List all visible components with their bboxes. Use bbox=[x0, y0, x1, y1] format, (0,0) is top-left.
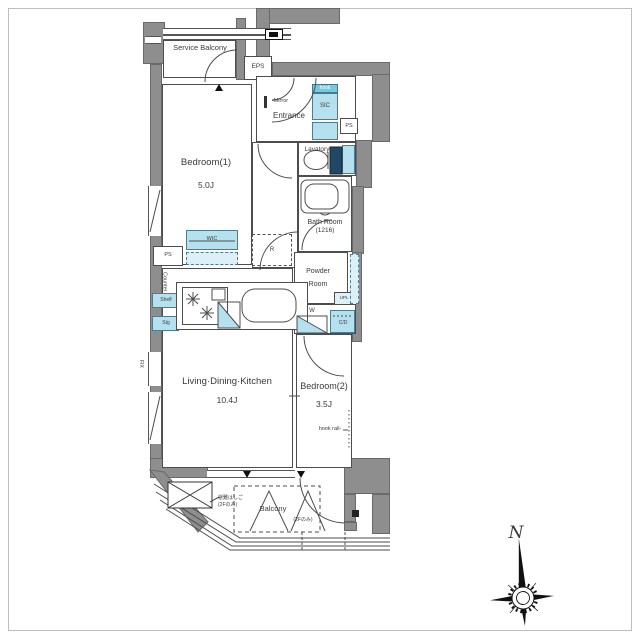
label-ldk: Living·Dining·Kitchen bbox=[182, 377, 272, 387]
label-wic: WIC bbox=[207, 237, 218, 243]
label-ps-entrance: PS bbox=[345, 124, 352, 130]
mirror-icon bbox=[264, 96, 267, 108]
label-powder-2: Room bbox=[309, 281, 328, 288]
door-arc-service-balcony bbox=[205, 50, 237, 82]
step-marker-down bbox=[243, 471, 251, 478]
label-counter: Counter bbox=[161, 272, 167, 292]
grill-box bbox=[212, 289, 225, 300]
door-arc-entrance-child bbox=[272, 78, 294, 100]
sink-icon bbox=[242, 289, 296, 322]
label-fix: FIX bbox=[138, 360, 143, 368]
label-entrance: Entrance bbox=[273, 112, 305, 120]
compass-icon bbox=[460, 510, 600, 635]
label-stg: Stg bbox=[162, 321, 170, 326]
label-bedroom1: Bedroom(1) bbox=[181, 158, 231, 168]
toilet-tank-icon bbox=[330, 147, 342, 174]
label-hook: hook bbox=[320, 86, 331, 91]
balcony-triangle bbox=[291, 491, 325, 531]
bathtub-inner bbox=[305, 184, 338, 209]
label-hatch-2: (2Fのみ) bbox=[218, 502, 237, 508]
door-arc-bedroom2 bbox=[304, 336, 344, 376]
label-balcony: Balcony bbox=[260, 505, 287, 513]
label-bedroom1-size: 5.0J bbox=[198, 181, 214, 190]
label-balcony-note: (2Fのみ) bbox=[293, 518, 312, 523]
floor-plan: Service Balcony EPS hook SIC PS Entrance… bbox=[0, 0, 640, 639]
label-service-balcony: Service Balcony bbox=[173, 44, 227, 52]
door-arc-hall bbox=[258, 144, 292, 178]
label-shelf: Shelf bbox=[160, 298, 171, 303]
window-diagonal bbox=[150, 396, 160, 440]
label-bedroom2: Bedroom(2) bbox=[300, 382, 348, 391]
window-diagonal bbox=[150, 190, 160, 232]
label-ldk-size: 10.4J bbox=[217, 396, 238, 405]
burner-icon bbox=[186, 292, 214, 320]
label-ps-west: PS bbox=[164, 253, 171, 259]
label-bath: Bath Room bbox=[307, 219, 342, 226]
step-marker-up bbox=[215, 84, 223, 91]
label-lavatory: Lavatory bbox=[305, 147, 330, 154]
label-upl: UPL bbox=[340, 296, 349, 301]
label-hatch-1: 避難はしご bbox=[218, 495, 243, 501]
label-hook-rail: hook rail- bbox=[319, 427, 342, 433]
door-arc-ldk bbox=[260, 232, 298, 270]
label-cd: C/D bbox=[339, 321, 348, 326]
label-sic: SIC bbox=[320, 103, 330, 109]
label-bedroom2-size: 3.5J bbox=[316, 400, 332, 409]
label-washer: W bbox=[309, 308, 315, 314]
label-powder-1: Powder bbox=[306, 268, 330, 275]
label-fridge: R bbox=[270, 247, 274, 253]
step-marker-down bbox=[297, 471, 305, 478]
compass-ring bbox=[511, 586, 534, 609]
label-eps: EPS bbox=[251, 64, 264, 71]
label-bath-size: (1216) bbox=[316, 228, 335, 235]
bathtub-icon bbox=[301, 180, 349, 213]
label-mirror: -Mirror bbox=[272, 99, 288, 105]
label-compass-north: N bbox=[509, 525, 524, 542]
